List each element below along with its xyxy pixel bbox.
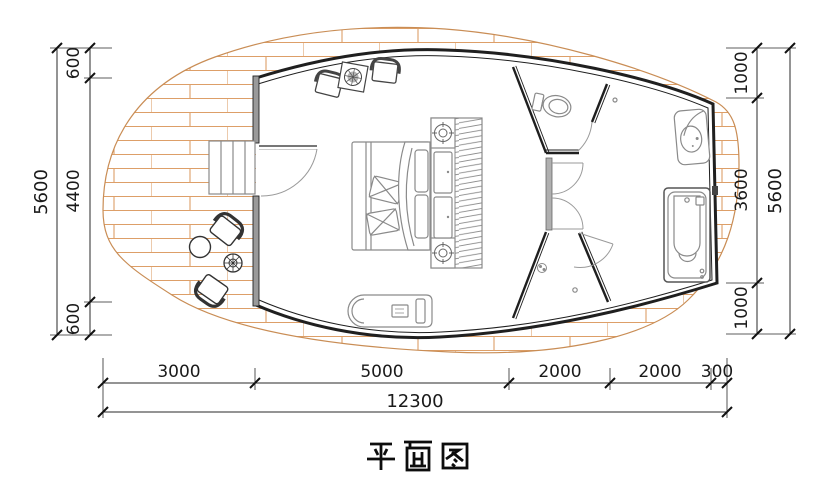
- outdoor-round-table-icon: [190, 237, 211, 258]
- hanging-rail-hatch: [455, 118, 482, 268]
- side-table-with-plant-icon: [338, 62, 368, 92]
- page-title-glyphs: 平面图: [364, 434, 472, 475]
- pillow-icon: [366, 209, 399, 236]
- dim-bottom-seg-1: 5000: [360, 362, 403, 382]
- wall-block: [712, 186, 718, 195]
- washbasin-icon: [674, 109, 711, 166]
- dim-bottom-seg-0: 3000: [157, 362, 200, 382]
- dim-bottom-seg-2: 2000: [538, 362, 581, 382]
- dim-bottom-seg-3: 2000: [638, 362, 681, 382]
- bathtub-icon: [664, 188, 710, 282]
- dim-left-seg-2: 600: [64, 303, 84, 335]
- dim-right-total: 5600: [765, 168, 786, 214]
- dim-right-seg-2: 1000: [732, 286, 752, 329]
- dim-left-seg-0: 600: [64, 47, 84, 79]
- dim-bottom-total: 12300: [386, 391, 443, 412]
- floor-plan-svg: 5600 600 4400 600 1000 3600 1000 5600 30…: [0, 0, 837, 496]
- entry-steps-icon: [209, 141, 255, 194]
- dim-right-seg-1: 3600: [732, 168, 752, 211]
- dim-bottom-seg-4: 300: [701, 362, 733, 382]
- outdoor-tea-table-icon: [224, 254, 242, 272]
- wardrobe-icon: [431, 118, 482, 268]
- left-wall-upper: [253, 76, 259, 143]
- dim-right-seg-0: 1000: [732, 51, 752, 94]
- chaise-lounge-icon: [348, 295, 432, 327]
- dim-left-total: 5600: [31, 169, 52, 215]
- left-wall-lower: [253, 196, 259, 306]
- dim-left-seg-1: 4400: [64, 169, 84, 212]
- floor-plan-page: 5600 600 4400 600 1000 3600 1000 5600 30…: [0, 0, 837, 496]
